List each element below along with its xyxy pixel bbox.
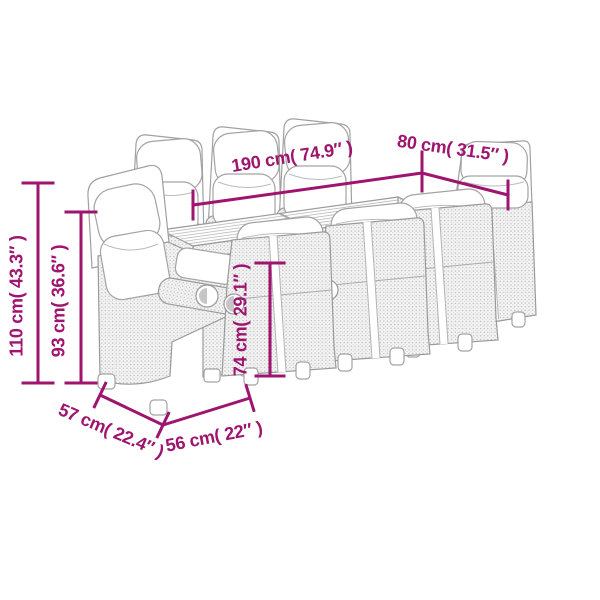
- furniture-dimension-diagram: 190 cm( 74.9″ ) 80 cm( 31.5″ ) 110 cm( 4…: [0, 0, 600, 600]
- dim-label-chair-total-height: 110 cm( 43.3″ ): [7, 235, 28, 356]
- dimension-line-chair-width: [163, 386, 254, 425]
- dim-label-table-height: 74 cm( 29.1″ ): [231, 264, 252, 376]
- dim-label-chair-back-height: 93 cm( 36.6″ ): [49, 245, 70, 357]
- furniture-illustration: [0, 0, 600, 600]
